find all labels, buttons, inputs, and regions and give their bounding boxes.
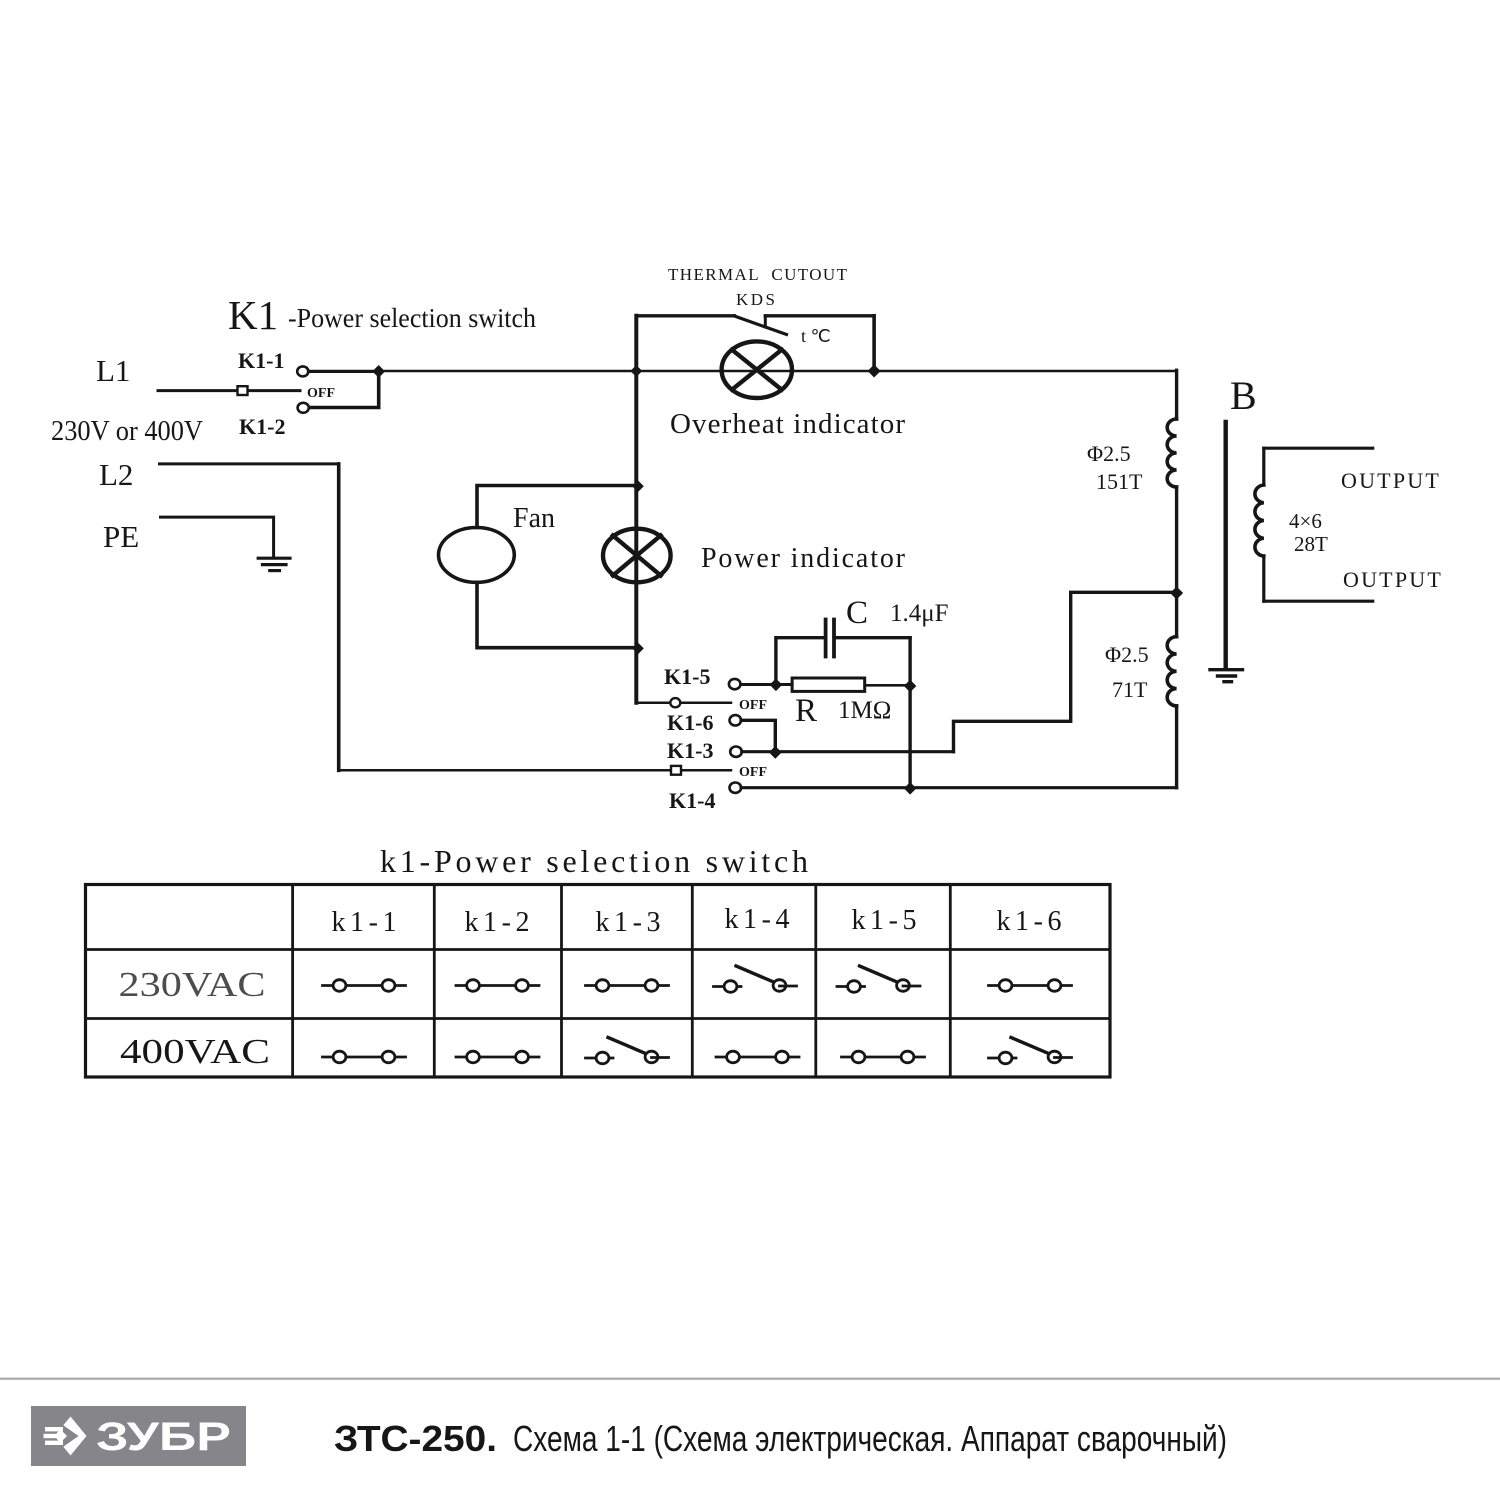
svg-text:KDS: KDS: [736, 290, 775, 309]
svg-text:C: C: [846, 595, 868, 631]
svg-text:400VAC: 400VAC: [120, 1032, 270, 1071]
svg-text:1.4μF: 1.4μF: [890, 600, 949, 627]
svg-text:K1-4: K1-4: [669, 788, 715, 813]
svg-text:4×6: 4×6: [1289, 509, 1322, 533]
svg-text:230VAC: 230VAC: [119, 965, 266, 1004]
svg-text:Power indicator: Power indicator: [701, 543, 906, 574]
svg-text:OFF: OFF: [739, 765, 767, 780]
svg-text:L2: L2: [99, 457, 133, 492]
svg-text:ЗУБР: ЗУБР: [96, 1415, 231, 1459]
svg-text:k1-Power selection switch: k1-Power selection switch: [380, 843, 808, 879]
svg-text:OUTPUT: OUTPUT: [1341, 468, 1441, 493]
svg-text:1MΩ: 1MΩ: [838, 697, 891, 724]
svg-text:K1-3: K1-3: [667, 738, 713, 763]
svg-text:Φ2.5: Φ2.5: [1087, 441, 1131, 466]
svg-text:ЗТС-250.: ЗТС-250.: [334, 1418, 497, 1459]
svg-text:230V or 400V: 230V or 400V: [51, 416, 203, 447]
svg-text:k1-2: k1-2: [465, 907, 530, 938]
svg-text:Fan: Fan: [513, 503, 555, 534]
svg-text:Φ2.5: Φ2.5: [1105, 642, 1149, 667]
svg-text:OUTPUT: OUTPUT: [1343, 567, 1443, 592]
svg-text:k1-3: k1-3: [596, 907, 661, 938]
svg-text:K1-6: K1-6: [667, 710, 713, 735]
svg-text:PE: PE: [103, 519, 139, 554]
svg-text:t ℃: t ℃: [801, 326, 831, 346]
svg-text:k1-4: k1-4: [725, 904, 790, 935]
svg-text:Схема 1-1 (Схема электрическая: Схема 1-1 (Схема электрическая. Аппарат …: [513, 1418, 1227, 1459]
svg-text:k1-1: k1-1: [332, 907, 397, 938]
svg-text:71T: 71T: [1112, 677, 1148, 702]
svg-text:k1-6: k1-6: [997, 906, 1062, 937]
svg-text:28T: 28T: [1294, 532, 1328, 556]
svg-text:-Power selection switch: -Power selection switch: [288, 303, 536, 333]
svg-text:151T: 151T: [1096, 469, 1143, 494]
svg-text:K1: K1: [228, 292, 278, 338]
svg-text:K1-2: K1-2: [239, 414, 285, 439]
svg-text:OFF: OFF: [739, 698, 767, 713]
svg-text:K1-5: K1-5: [664, 664, 710, 689]
svg-text:Overheat indicator: Overheat indicator: [670, 408, 905, 440]
svg-text:R: R: [795, 693, 817, 729]
svg-text:L1: L1: [96, 353, 130, 388]
svg-text:K1-1: K1-1: [238, 348, 284, 373]
svg-text:k1-5: k1-5: [852, 905, 917, 936]
svg-text:THERMAL CUTOUT: THERMAL CUTOUT: [668, 265, 848, 284]
svg-text:B: B: [1230, 373, 1257, 418]
svg-text:OFF: OFF: [307, 386, 335, 401]
